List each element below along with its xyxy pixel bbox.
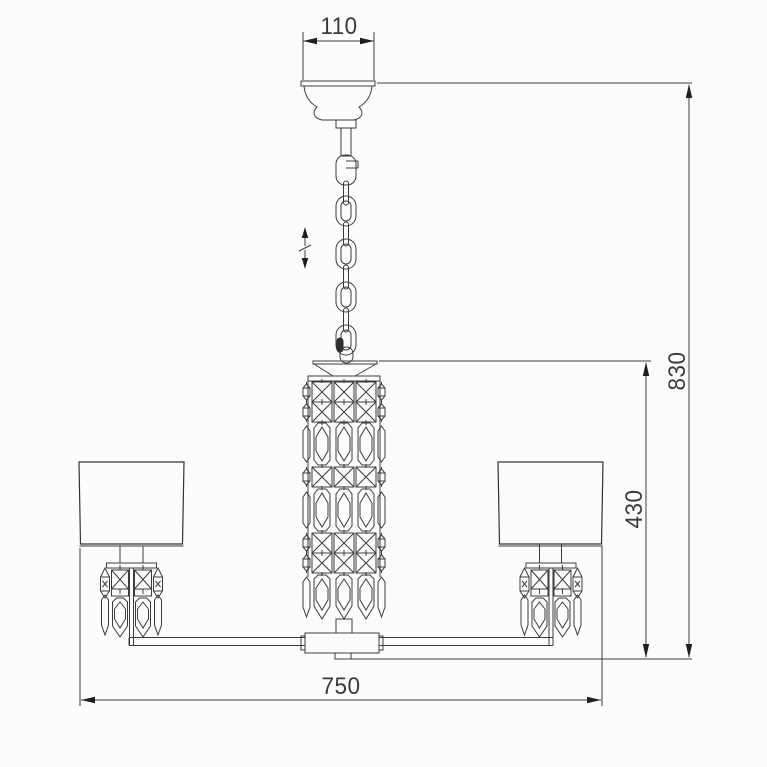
- left-arm: [129, 638, 305, 646]
- center-hub: [301, 633, 383, 659]
- height-adjustable-icon: [299, 227, 311, 269]
- chandelier-dimension-drawing: 110 830 430 750: [0, 0, 767, 767]
- dimension-canopy-width: 110: [303, 13, 374, 80]
- dimension-overall-height: 830: [351, 83, 692, 659]
- dimension-value-canopy-width: 110: [321, 13, 358, 40]
- dimension-body-height: 430: [379, 361, 651, 658]
- right-lamp-shade: [498, 462, 603, 563]
- column-stem: [336, 619, 352, 633]
- bottom-finial: [335, 653, 351, 659]
- right-arm: [379, 638, 553, 646]
- crystal-column: [303, 361, 385, 633]
- ceiling-canopy: [301, 81, 375, 156]
- dimension-value-overall-width: 750: [322, 673, 361, 700]
- dimension-value-overall-height: 830: [664, 352, 691, 391]
- chain-pin: [337, 338, 343, 352]
- dimension-value-body-height: 430: [621, 490, 648, 529]
- left-crystal-cluster: [101, 563, 163, 645]
- suspension-chain: [336, 155, 358, 363]
- drawing-sheet: 110 830 430 750: [0, 0, 767, 767]
- left-lamp-shade: [79, 462, 184, 563]
- right-crystal-cluster: [520, 563, 582, 645]
